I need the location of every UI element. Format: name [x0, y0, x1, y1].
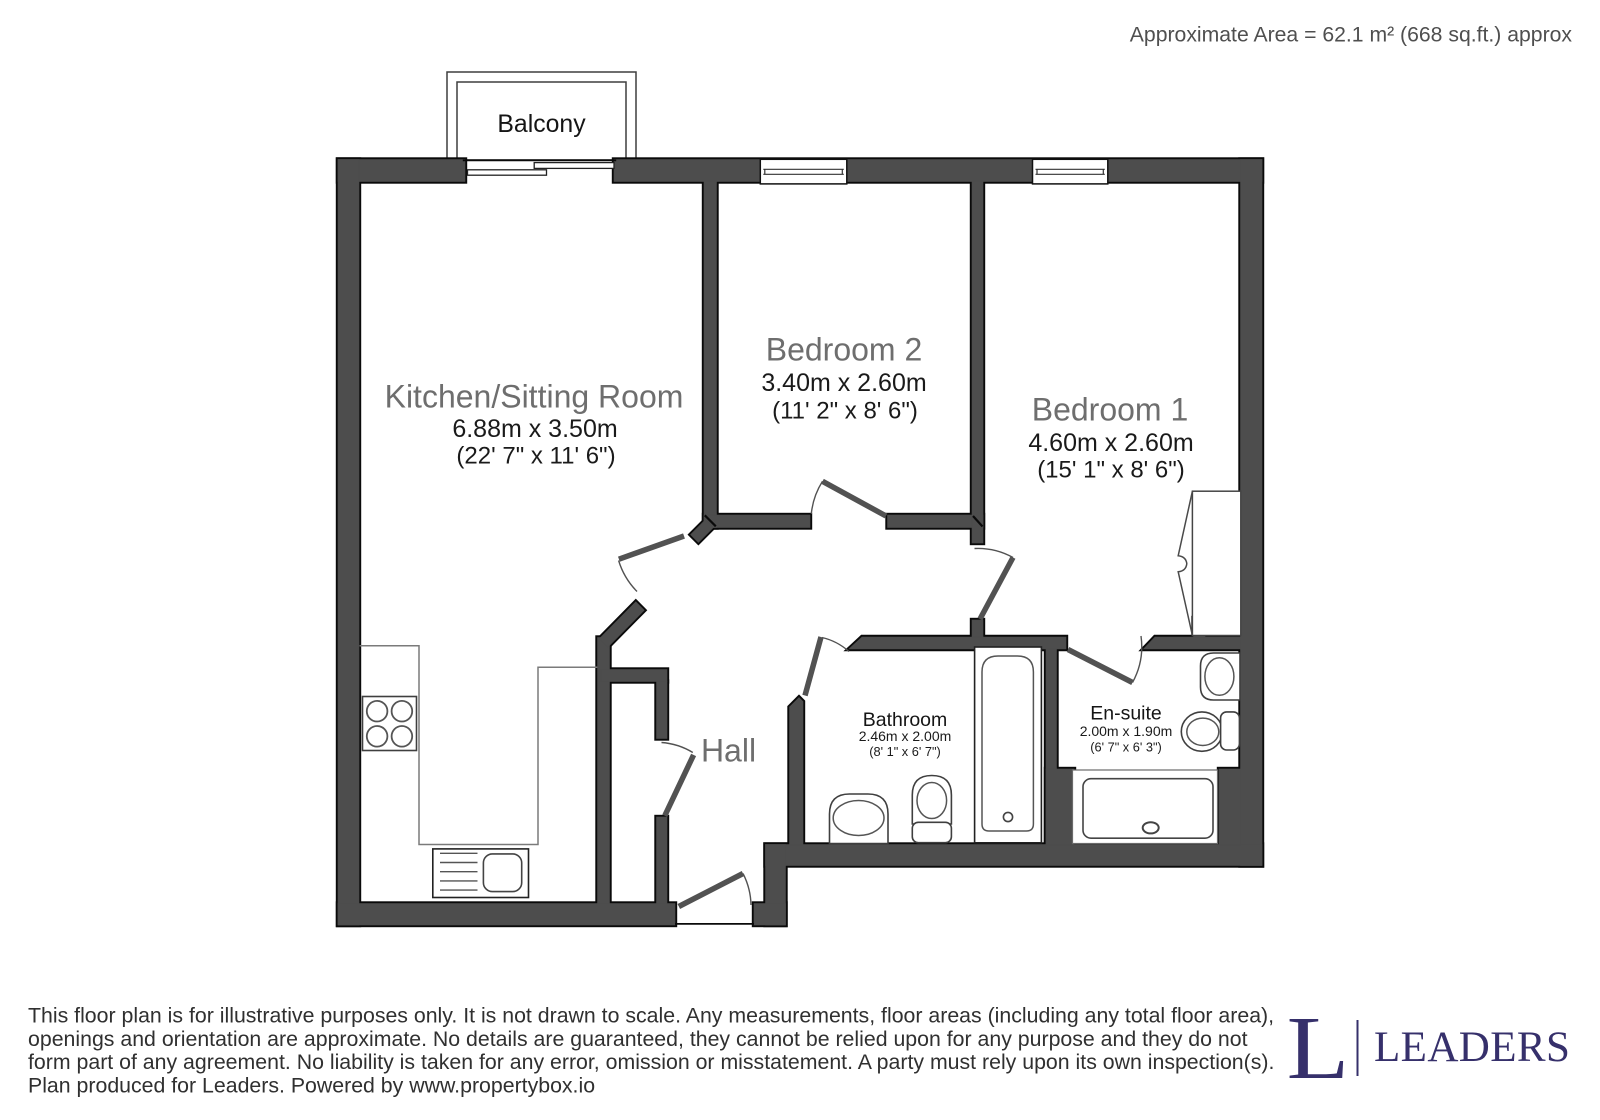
svg-text:Balcony: Balcony [497, 111, 586, 138]
svg-text:LEADERS: LEADERS [1374, 1024, 1570, 1071]
svg-text:(22' 7" x 11' 6"): (22' 7" x 11' 6") [456, 443, 615, 470]
svg-text:(6' 7" x 6' 3"): (6' 7" x 6' 3") [1090, 740, 1162, 755]
svg-text:This floor plan is for illustr: This floor plan is for illustrative purp… [28, 1004, 1274, 1028]
svg-text:(11' 2" x 8' 6"): (11' 2" x 8' 6") [772, 398, 918, 425]
svg-text:6.88m x 3.50m: 6.88m x 3.50m [452, 415, 617, 443]
svg-text:En-suite: En-suite [1090, 702, 1162, 724]
svg-text:Hall: Hall [701, 732, 756, 768]
svg-text:Approximate Area = 62.1 m² (66: Approximate Area = 62.1 m² (668 sq.ft.) … [1130, 24, 1573, 47]
svg-text:2.46m x 2.00m: 2.46m x 2.00m [859, 728, 952, 744]
svg-text:4.60m x 2.60m: 4.60m x 2.60m [1028, 429, 1193, 457]
svg-text:L: L [1287, 998, 1350, 1098]
svg-text:Kitchen/Sitting Room: Kitchen/Sitting Room [385, 378, 684, 414]
svg-text:Bedroom 1: Bedroom 1 [1032, 391, 1189, 427]
svg-text:(15' 1" x 8' 6"): (15' 1" x 8' 6") [1037, 457, 1185, 484]
svg-text:openings and orientation are a: openings and orientation are approximate… [28, 1027, 1248, 1051]
svg-text:Bedroom 2: Bedroom 2 [766, 331, 923, 367]
svg-text:2.00m x 1.90m: 2.00m x 1.90m [1080, 723, 1173, 739]
svg-text:form part of any agreement. No: form part of any agreement. No liability… [28, 1050, 1274, 1074]
svg-text:Plan produced for Leaders. Pow: Plan produced for Leaders. Powered by ww… [28, 1074, 595, 1098]
svg-text:(8' 1" x 6' 7"): (8' 1" x 6' 7") [869, 744, 941, 759]
svg-text:3.40m x 2.60m: 3.40m x 2.60m [761, 369, 926, 397]
